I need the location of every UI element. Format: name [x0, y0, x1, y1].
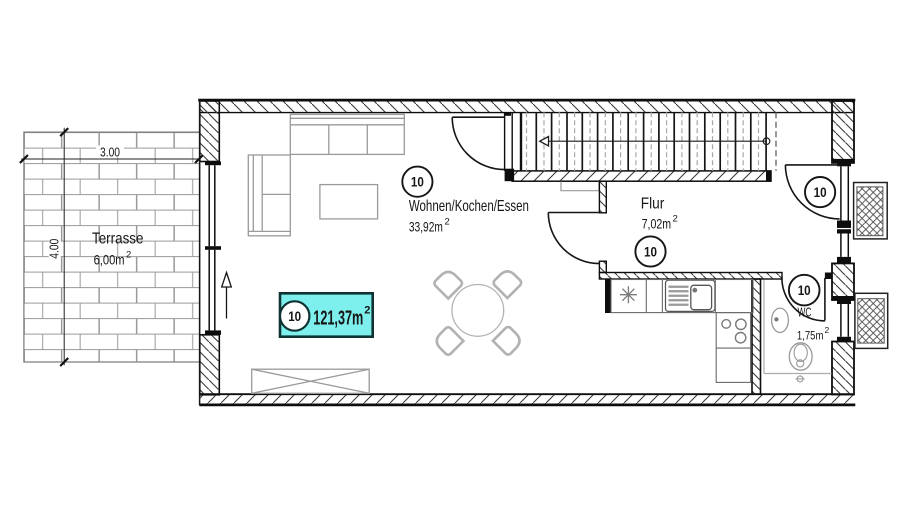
svg-text:33,92m: 33,92m — [409, 220, 443, 235]
svg-text:1,75m: 1,75m — [797, 329, 824, 343]
svg-text:4.00: 4.00 — [48, 239, 62, 259]
svg-text:2: 2 — [825, 325, 830, 335]
svg-text:WC: WC — [798, 305, 812, 320]
svg-text:Terrasse: Terrasse — [92, 231, 144, 248]
svg-text:10: 10 — [814, 185, 827, 200]
svg-text:3.00: 3.00 — [100, 146, 120, 160]
svg-text:Wohnen/Kochen/Essen: Wohnen/Kochen/Essen — [409, 198, 529, 215]
svg-text:2: 2 — [364, 305, 370, 317]
svg-text:10: 10 — [798, 283, 811, 298]
svg-text:7,02m: 7,02m — [642, 217, 672, 232]
svg-text:2: 2 — [673, 214, 678, 225]
svg-text:2: 2 — [445, 217, 450, 228]
svg-text:121,37m: 121,37m — [313, 308, 363, 330]
svg-text:2: 2 — [126, 250, 131, 261]
svg-text:10: 10 — [644, 245, 657, 260]
svg-text:10: 10 — [411, 175, 424, 190]
svg-text:10: 10 — [288, 309, 301, 324]
svg-text:6,00m: 6,00m — [94, 253, 125, 268]
svg-text:Flur: Flur — [641, 196, 665, 213]
